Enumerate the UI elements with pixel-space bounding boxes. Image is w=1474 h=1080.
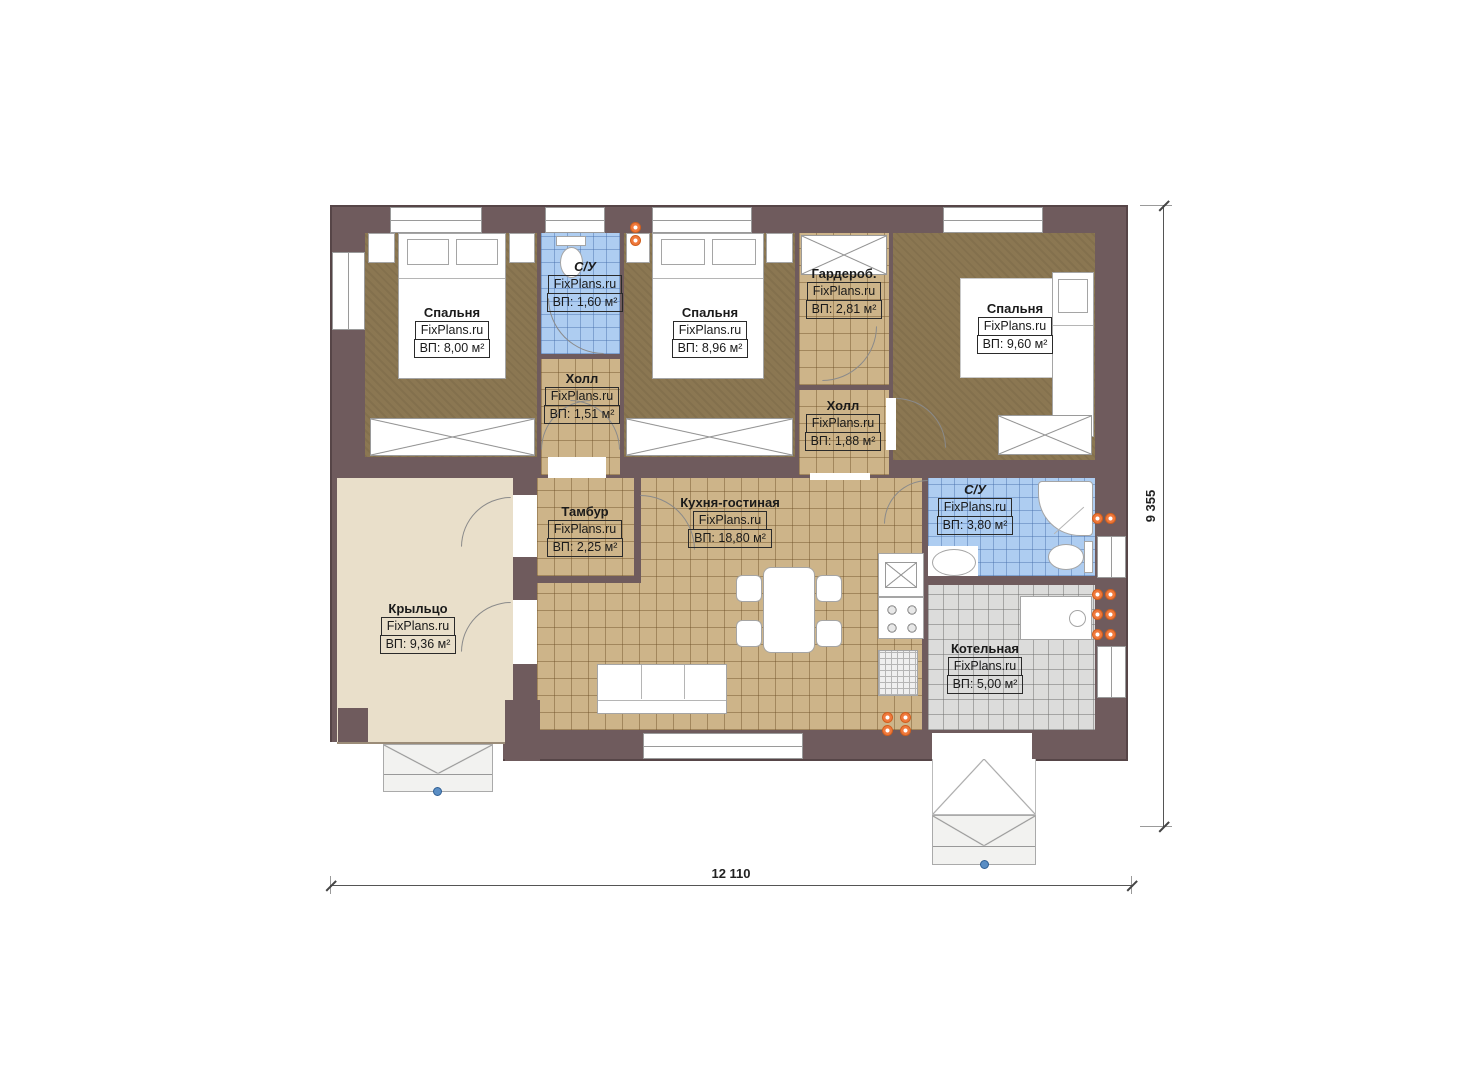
floor-plan-canvas: Спальня FixPlans.ru ВП: 8,00 м² С/У FixP…: [0, 0, 1474, 1080]
flue-marker-icon: [630, 235, 641, 246]
window-top-1: [390, 207, 482, 233]
door-opening-porch-vestibule: [513, 495, 537, 557]
sofa-cushion-line: [641, 665, 642, 699]
floor-vestibule: [537, 478, 641, 583]
flue-marker-icon: [1092, 609, 1103, 620]
porch-post-right: [505, 700, 540, 761]
window-top-4: [943, 207, 1043, 233]
blanket-line: [399, 278, 505, 279]
dimension-width-label: 12 110: [330, 866, 1132, 881]
flue-marker-icon: [1105, 629, 1116, 640]
dimension-height-label: 9 355: [1143, 466, 1163, 546]
nightstand: [766, 233, 793, 263]
dim-guide: [1140, 826, 1172, 827]
window-right-2: [1097, 646, 1126, 698]
opening-hall2-kitchen: [810, 473, 870, 480]
sofa-back-line: [598, 700, 726, 701]
flue-marker-icon: [1105, 589, 1116, 600]
pillow: [456, 239, 498, 265]
boiler-exit-steps: [932, 815, 1036, 865]
flue-marker-icon: [1092, 513, 1103, 524]
dining-table: [763, 567, 815, 653]
flue-marker-icon: [882, 712, 893, 723]
stove: [878, 597, 924, 639]
window-right-1: [1097, 536, 1126, 578]
shower-door-line: [1054, 507, 1084, 535]
chair: [736, 575, 762, 602]
flue-marker-icon: [900, 725, 911, 736]
door-opening-hall1-vestibule: [548, 457, 606, 478]
pillow: [407, 239, 449, 265]
flue-marker-icon: [1105, 609, 1116, 620]
dimension-line-bottom: [330, 885, 1132, 886]
pillow: [661, 239, 705, 265]
toilet-tank-2: [1084, 541, 1093, 573]
porch-post-left: [338, 708, 368, 742]
step-marker-dot: [433, 787, 442, 796]
window-top-2: [545, 207, 605, 233]
pillow: [712, 239, 756, 265]
closet-bedroom-2: [626, 418, 793, 456]
dim-guide: [1140, 205, 1172, 206]
window-top-3: [652, 207, 752, 233]
dimension-line-right: [1163, 205, 1164, 827]
flue-marker-icon: [882, 725, 893, 736]
kitchen-sink: [885, 562, 917, 588]
bed-3: [1052, 272, 1094, 437]
toilet-bowl-1: [560, 247, 583, 278]
flue-marker-icon: [1105, 513, 1116, 524]
bed-2: [652, 233, 764, 379]
chair: [816, 620, 842, 647]
sofa: [597, 664, 727, 714]
nightstand: [368, 233, 395, 263]
toilet-tank-1: [556, 236, 586, 246]
porch-steps: [383, 744, 493, 792]
bedroom-3-panel: [960, 278, 1063, 378]
boiler-exit-door-swing: [932, 759, 1036, 815]
blanket-line: [653, 278, 763, 279]
washbasin: [932, 549, 976, 576]
nightstand: [509, 233, 535, 263]
flue-marker-icon: [900, 712, 911, 723]
floor-hall-2: [799, 390, 889, 475]
closet-wardrobe: [801, 235, 887, 275]
blanket-line: [1053, 325, 1093, 326]
boiler-dial: [1069, 610, 1086, 627]
chair: [816, 575, 842, 602]
pillow: [1058, 279, 1088, 313]
boiler-unit: [1020, 596, 1092, 640]
kitchen-appliance: [878, 650, 918, 696]
door-opening-porch-kitchen: [513, 600, 537, 664]
closet-bedroom-3: [998, 415, 1092, 455]
door-opening-hall2-bedroom3: [886, 398, 896, 450]
closet-bedroom-1: [370, 418, 535, 456]
kitchen-counter: [878, 553, 924, 597]
bed-1: [398, 233, 506, 379]
window-left-1: [332, 252, 365, 330]
toilet-bowl-2: [1048, 544, 1084, 570]
door-opening-boiler-exit: [932, 733, 1032, 759]
flue-marker-icon: [1092, 629, 1103, 640]
window-bottom-1: [643, 733, 803, 759]
sofa-cushion-line: [684, 665, 685, 699]
flue-marker-icon: [630, 222, 641, 233]
chair: [736, 620, 762, 647]
flue-marker-icon: [1092, 589, 1103, 600]
